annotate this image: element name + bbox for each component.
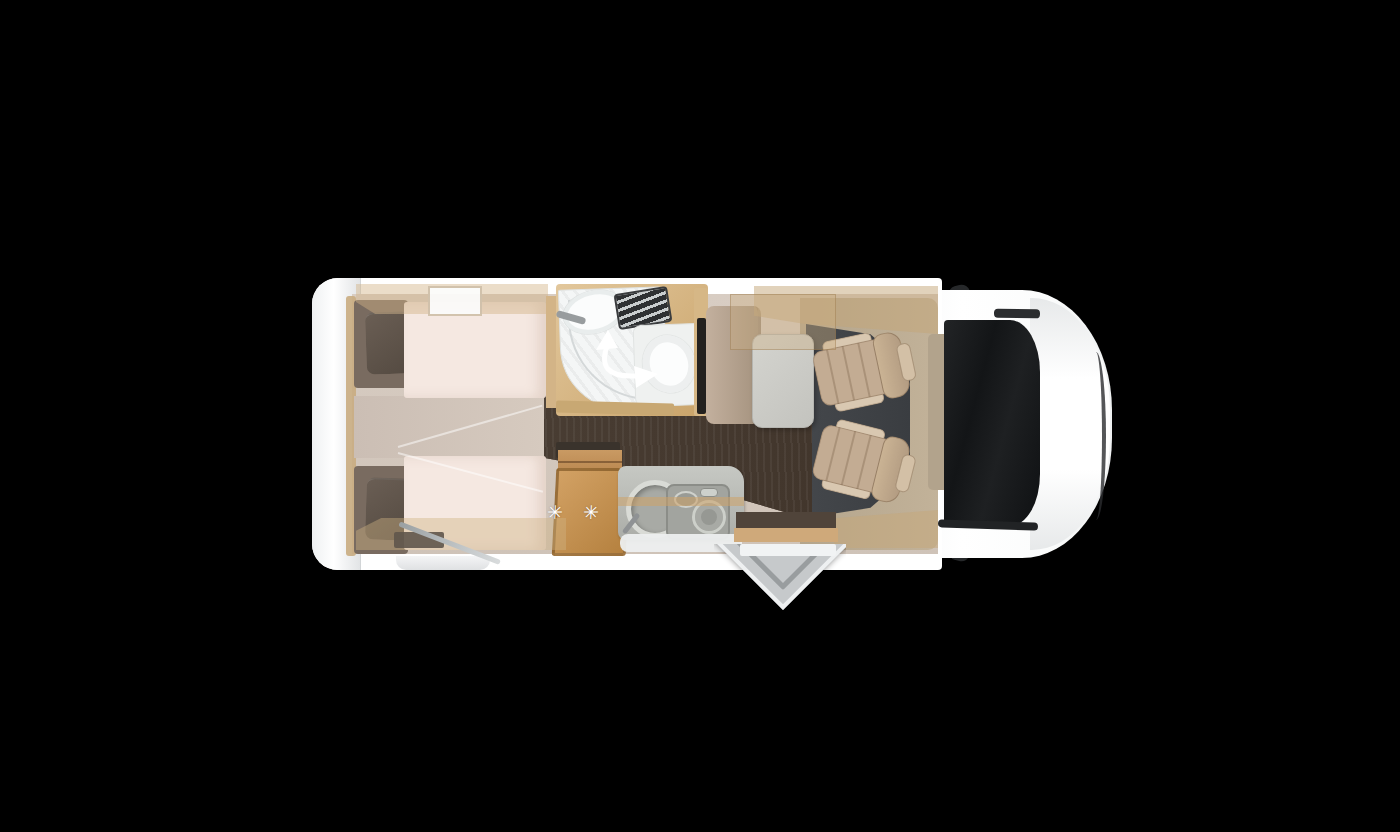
bed-left-mattress — [404, 302, 546, 398]
overhead-shelf-table — [730, 294, 836, 350]
canvas-background: ✳ ✳ ✳ — [0, 0, 1400, 832]
door-sill-white — [740, 544, 836, 556]
stove-knobs — [700, 488, 718, 497]
counter-wood-rail — [618, 497, 744, 506]
overhead-locker-white — [428, 286, 482, 316]
door-sill-wood — [734, 528, 838, 542]
exterior-step — [396, 556, 490, 570]
between-beds-platform — [354, 396, 544, 458]
shower-swivel-arrow-icon — [586, 328, 660, 390]
tv-panel — [697, 318, 706, 414]
windshield — [944, 320, 1040, 526]
roof-antenna-icon — [994, 309, 1040, 319]
